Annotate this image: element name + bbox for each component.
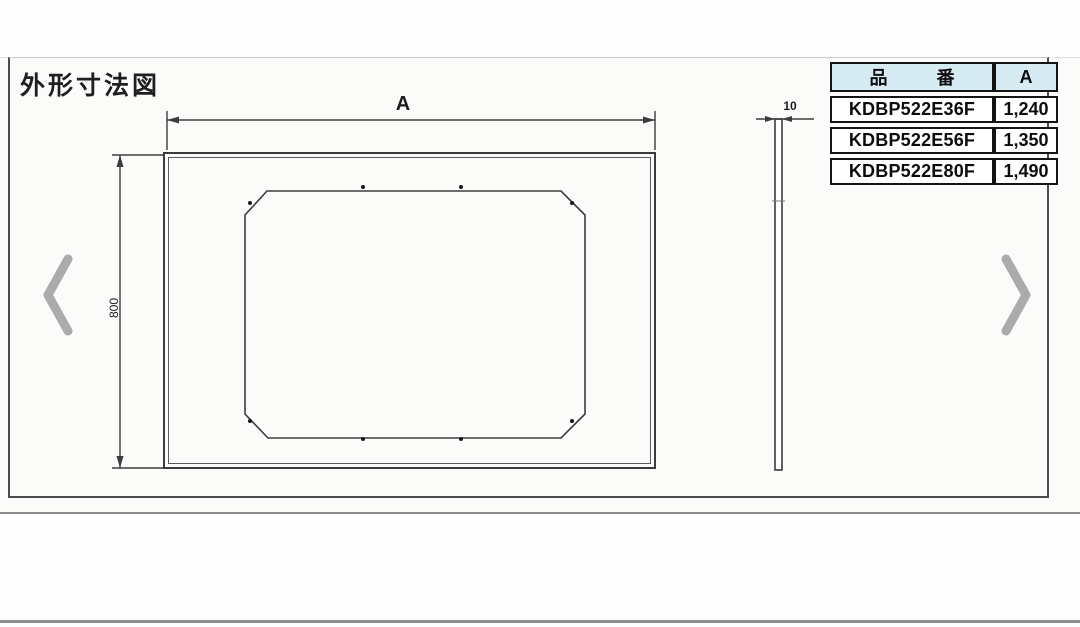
table-row: KDBP522E80F 1,490 [830, 158, 1058, 185]
dim-a-cell: 1,490 [994, 158, 1058, 185]
dim-label-a: A [388, 93, 418, 116]
spec-table: 品 番 A KDBP522E36F 1,240 KDBP522E56F 1,35… [830, 58, 1058, 189]
dim-label-10: 10 [778, 99, 802, 113]
spec-table-header-dim-a: A [994, 62, 1058, 92]
drawing-title: 外形寸法図 [20, 66, 160, 102]
part-no-cell: KDBP522E56F [830, 127, 994, 154]
table-row: KDBP522E56F 1,350 [830, 127, 1058, 154]
carousel-next-button[interactable] [992, 250, 1040, 340]
bottom-divider [0, 620, 1080, 623]
spec-table-header-part-no: 品 番 [830, 62, 994, 92]
panel-front-view-inner-frame [168, 157, 651, 464]
dim-label-800: 800 [107, 289, 121, 327]
dim-a-cell: 1,350 [994, 127, 1058, 154]
product-image-viewer: 外形寸法図 [0, 0, 1080, 627]
part-no-cell: KDBP522E80F [830, 158, 994, 185]
chevron-left-icon [36, 251, 80, 339]
part-no-cell: KDBP522E36F [830, 96, 994, 123]
carousel-prev-button[interactable] [34, 250, 82, 340]
chevron-right-icon [994, 251, 1038, 339]
spec-table-header-row: 品 番 A [830, 62, 1058, 92]
table-row: KDBP522E36F 1,240 [830, 96, 1058, 123]
dim-a-cell: 1,240 [994, 96, 1058, 123]
panel-front-view-frame [163, 152, 656, 469]
